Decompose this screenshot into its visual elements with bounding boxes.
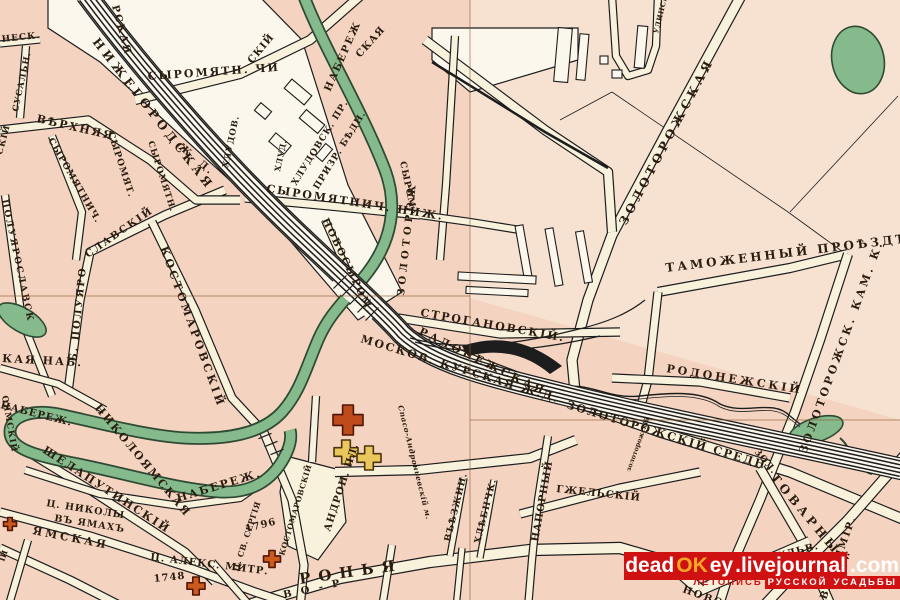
- watermark-tagline-word: УСАДЬБЫ: [831, 576, 900, 589]
- watermark: deadOKey.livejournal.com ЛЕТОПИСЬРУССКОЙ…: [624, 555, 900, 588]
- building: [600, 56, 608, 64]
- map-screenshot: НЕСК.СУСАЛЬН.СКІЙВѢРХНЯЯСЫРОМЯТНИЧ.СЫРОМ…: [0, 0, 900, 600]
- watermark-segment: dead: [624, 552, 675, 580]
- watermark-segment: .com: [849, 554, 900, 577]
- watermark-tagline-word: ЛЕТОПИСЬ: [691, 576, 764, 589]
- building: [612, 70, 622, 78]
- watermark-tagline-word: РУССКОЙ: [765, 576, 831, 589]
- map-canvas: НЕСК.СУСАЛЬН.СКІЙВѢРХНЯЯСЫРОМЯТНИЧ.СЫРОМ…: [0, 0, 900, 600]
- street: [312, 396, 316, 462]
- watermark-site: deadOKey.livejournal.com: [624, 555, 900, 576]
